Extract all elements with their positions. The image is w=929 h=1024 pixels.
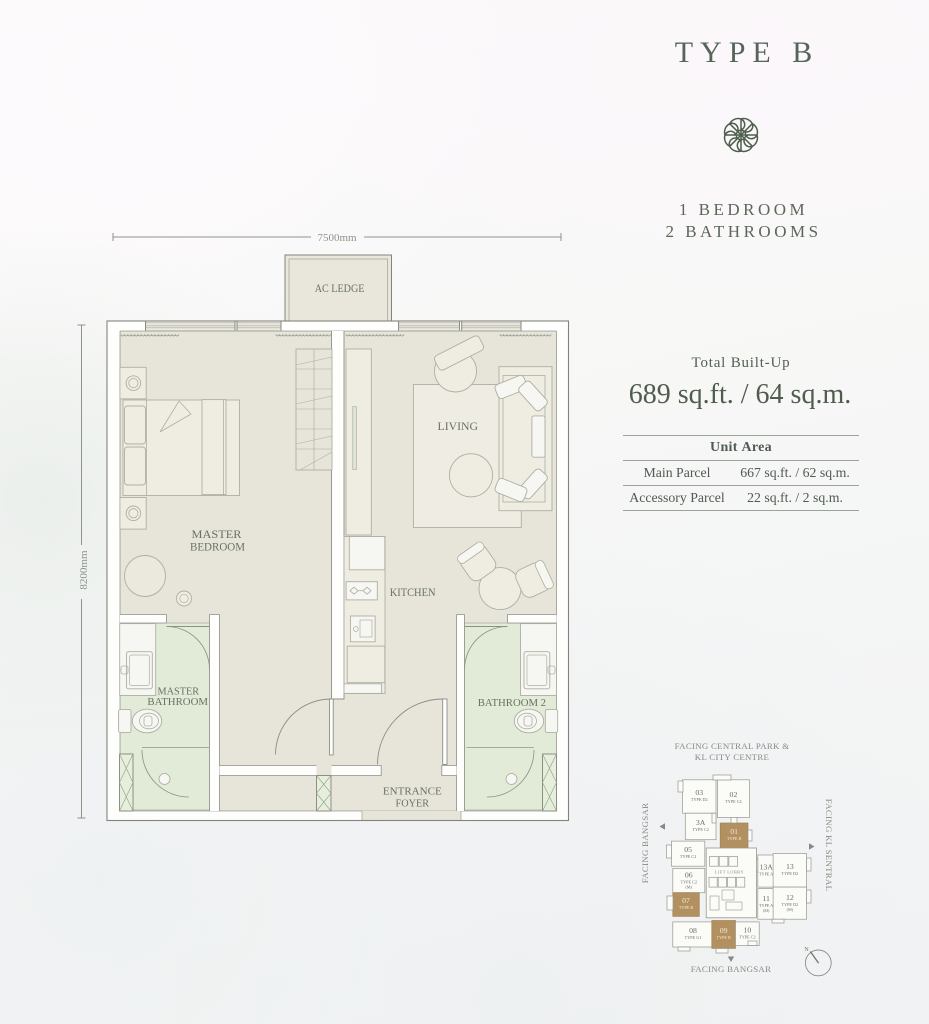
svg-text:TYPE B: TYPE B	[716, 935, 731, 940]
svg-text:FOYER: FOYER	[396, 797, 430, 809]
svg-text:09: 09	[720, 926, 728, 935]
svg-text:TYPE C2: TYPE C2	[725, 799, 741, 804]
svg-text:3A: 3A	[696, 818, 706, 827]
svg-text:N: N	[804, 947, 809, 953]
svg-text:10: 10	[743, 925, 751, 934]
svg-text:(M): (M)	[763, 908, 770, 913]
svg-text:TYPE D2: TYPE D2	[691, 797, 708, 802]
svg-text:LIVING: LIVING	[438, 419, 479, 433]
svg-text:07: 07	[682, 896, 690, 905]
svg-text:FACING BANGSAR: FACING BANGSAR	[640, 803, 650, 884]
svg-text:BATHROOM: BATHROOM	[147, 697, 208, 708]
svg-text:12: 12	[786, 893, 794, 902]
svg-text:13: 13	[786, 862, 794, 871]
svg-text:FACING KL SENTRAL: FACING KL SENTRAL	[824, 799, 834, 892]
svg-text:MASTER: MASTER	[158, 687, 200, 698]
svg-text:FACING BANGSAR: FACING BANGSAR	[691, 964, 772, 974]
svg-text:11: 11	[762, 894, 770, 903]
svg-text:TYPE C2: TYPE C2	[739, 934, 755, 939]
svg-text:TYPE A: TYPE A	[759, 872, 773, 877]
svg-text:AC LEDGE: AC LEDGE	[315, 283, 365, 295]
svg-text:FACING CENTRAL PARK &: FACING CENTRAL PARK &	[675, 741, 790, 751]
svg-text:KL CITY CENTRE: KL CITY CENTRE	[695, 752, 769, 762]
svg-text:(M): (M)	[686, 885, 693, 890]
svg-text:TYPE G1: TYPE G1	[685, 935, 702, 940]
svg-text:8200mm: 8200mm	[78, 550, 90, 590]
svg-text:TYPE D2: TYPE D2	[782, 871, 799, 876]
svg-text:BEDROOM: BEDROOM	[190, 541, 245, 553]
svg-text:TYPE B: TYPE B	[679, 905, 694, 910]
svg-text:TYPE B: TYPE B	[727, 836, 742, 841]
svg-text:TYPE C2: TYPE C2	[680, 854, 696, 859]
svg-text:03: 03	[695, 788, 703, 797]
svg-text:LIFT LOBBY: LIFT LOBBY	[715, 870, 745, 875]
svg-text:02: 02	[730, 790, 738, 799]
svg-text:BATHROOM 2: BATHROOM 2	[478, 698, 546, 709]
svg-text:01: 01	[730, 827, 738, 836]
svg-text:05: 05	[684, 845, 692, 854]
svg-text:KITCHEN: KITCHEN	[390, 587, 436, 599]
svg-text:MASTER: MASTER	[192, 529, 242, 541]
svg-text:(M): (M)	[787, 907, 794, 912]
svg-text:ENTRANCE: ENTRANCE	[383, 785, 442, 797]
svg-text:TYPE C2: TYPE C2	[692, 827, 708, 832]
svg-text:06: 06	[685, 871, 693, 880]
svg-text:08: 08	[689, 926, 697, 935]
svg-text:13A: 13A	[759, 863, 773, 872]
svg-text:7500mm: 7500mm	[317, 232, 357, 244]
